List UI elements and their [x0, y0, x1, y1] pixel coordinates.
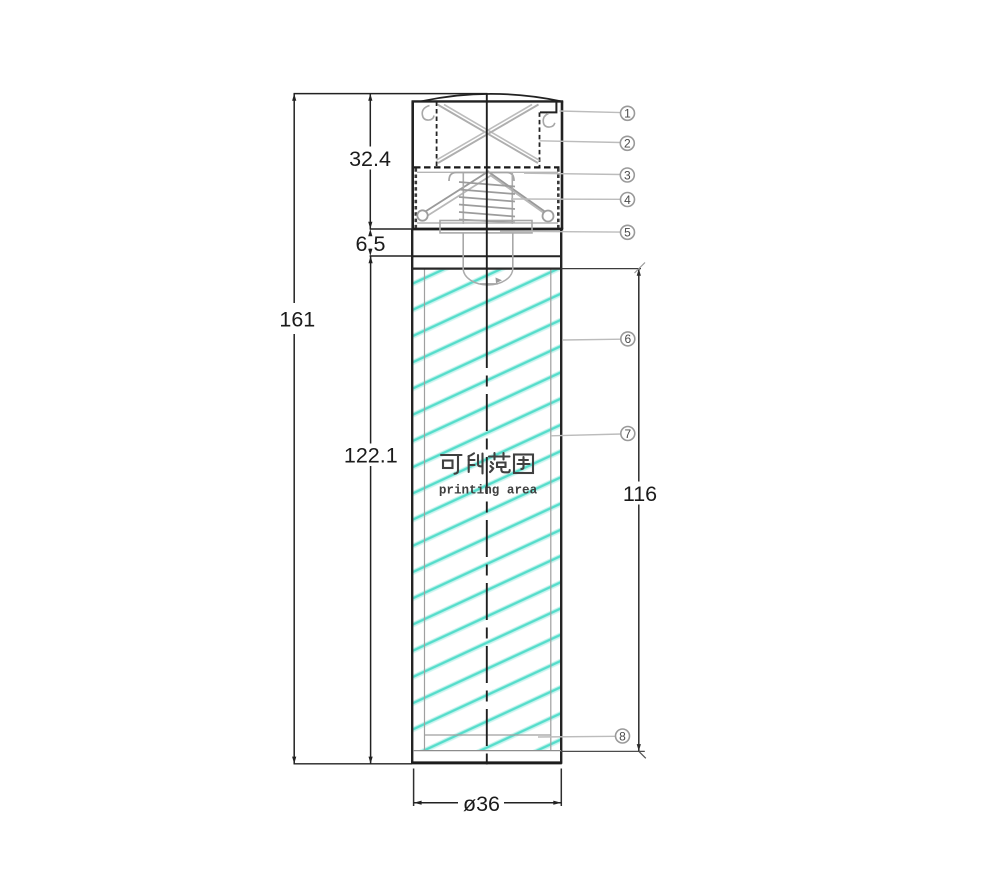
svg-text:5: 5: [624, 226, 631, 240]
svg-text:8: 8: [619, 729, 626, 743]
svg-text:ø36: ø36: [463, 792, 500, 816]
svg-text:161: 161: [279, 308, 315, 332]
svg-text:2: 2: [624, 137, 631, 151]
svg-text:printing area: printing area: [439, 484, 538, 498]
svg-text:116: 116: [623, 482, 657, 506]
svg-text:32.4: 32.4: [349, 147, 391, 171]
svg-text:6: 6: [624, 332, 631, 346]
svg-text:122.1: 122.1: [344, 443, 398, 467]
svg-text:1: 1: [624, 107, 631, 121]
svg-text:7: 7: [624, 427, 631, 441]
svg-text:3: 3: [624, 168, 631, 182]
svg-text:6.5: 6.5: [356, 232, 386, 256]
svg-text:4: 4: [624, 193, 631, 207]
